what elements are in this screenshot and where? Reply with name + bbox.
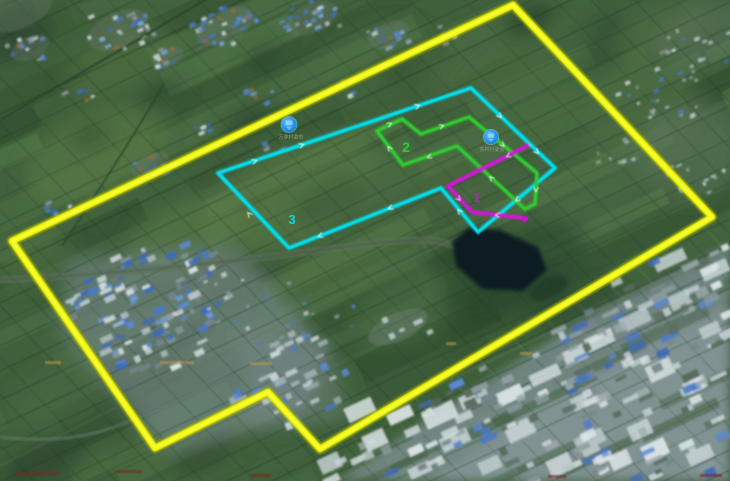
- svg-text:1: 1: [473, 190, 480, 205]
- svg-text:3: 3: [288, 212, 295, 227]
- svg-text:万季村委会: 万季村委会: [278, 134, 303, 141]
- svg-text:2: 2: [402, 139, 410, 155]
- svg-text:东林村委会: 东林村委会: [479, 146, 504, 153]
